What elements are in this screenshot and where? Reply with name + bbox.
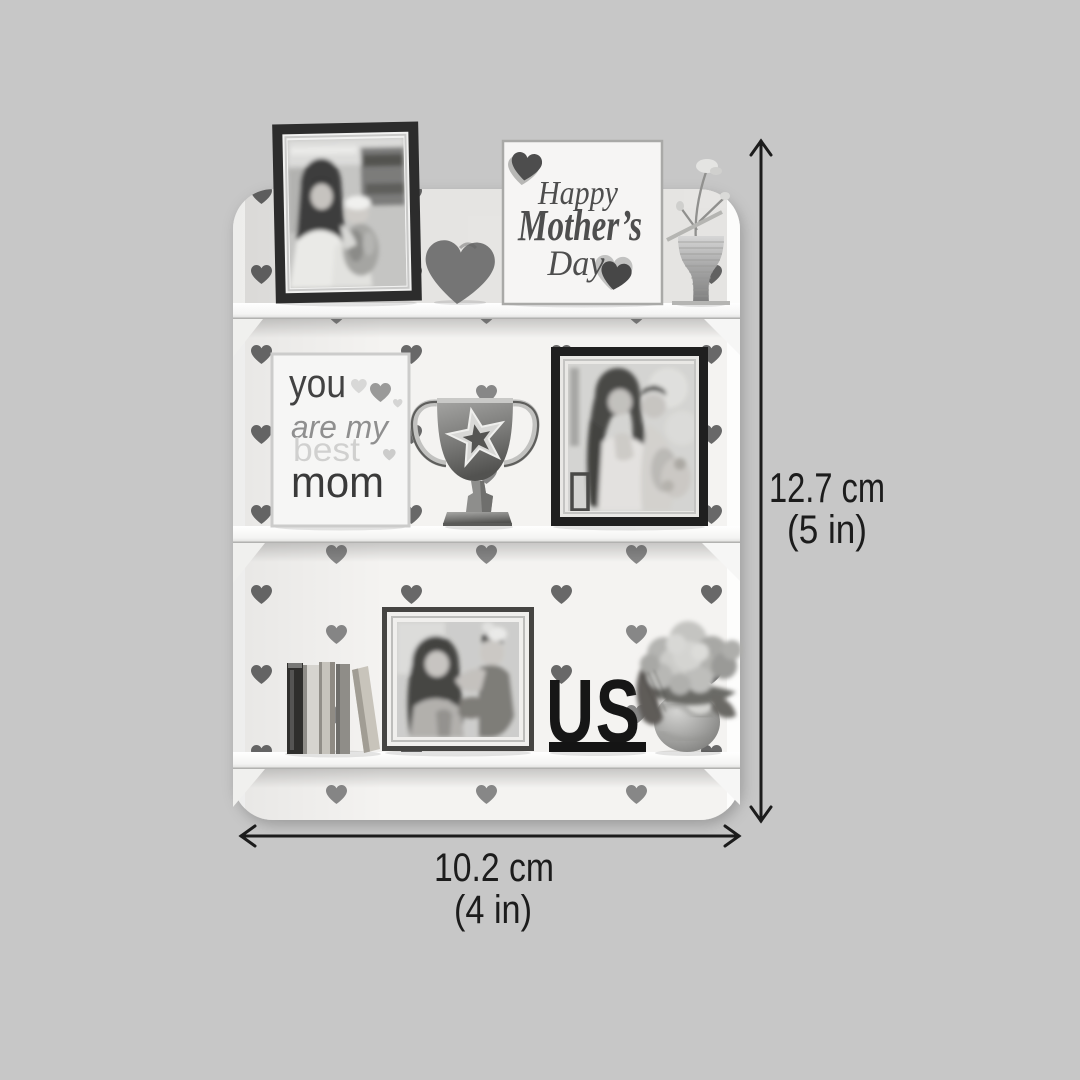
- svg-text:mom: mom: [291, 458, 384, 507]
- svg-text:(5 in): (5 in): [787, 508, 867, 552]
- svg-text:you: you: [289, 362, 346, 406]
- svg-text:(4 in): (4 in): [454, 888, 532, 932]
- svg-text:12.7 cm: 12.7 cm: [769, 464, 885, 511]
- svg-text:10.2 cm: 10.2 cm: [434, 846, 554, 890]
- svg-text:Day: Day: [547, 243, 605, 283]
